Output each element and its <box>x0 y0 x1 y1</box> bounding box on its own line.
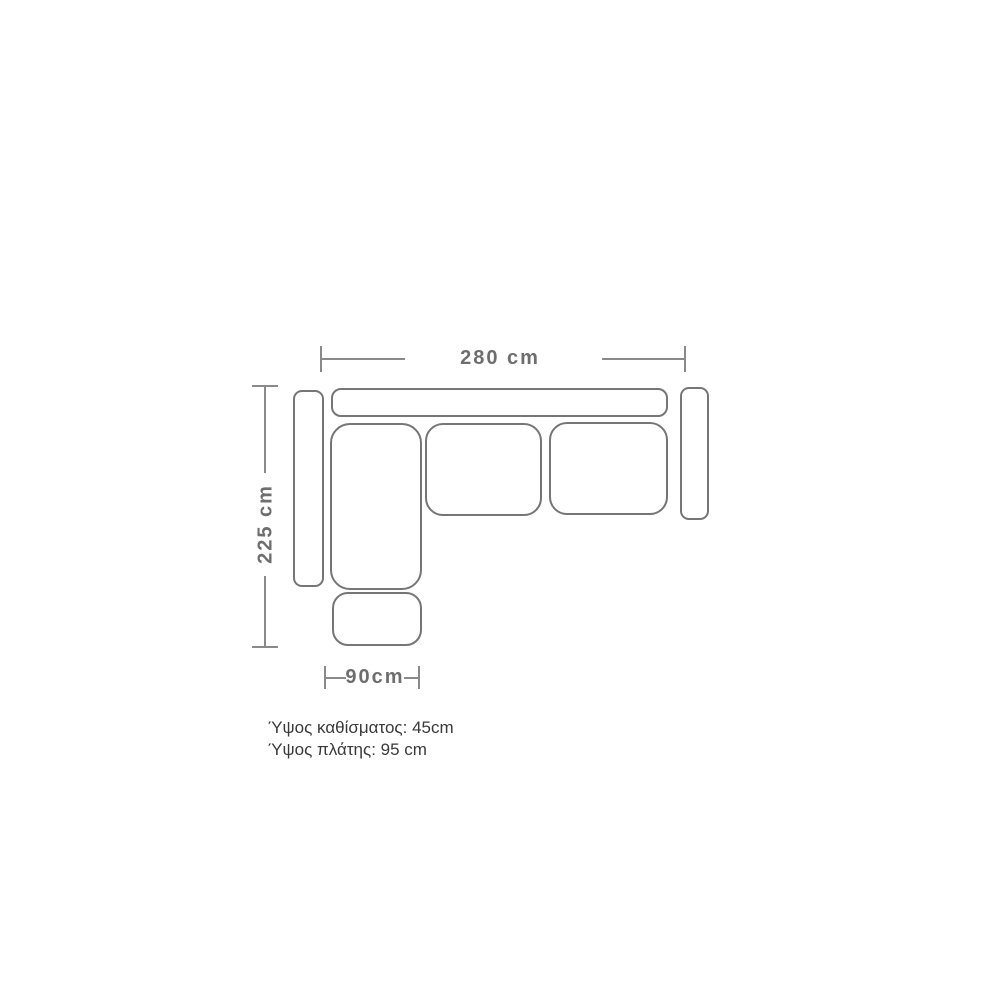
dimension-width-label: 280 cm <box>460 347 540 370</box>
dimension-chaise-right-line <box>404 677 419 679</box>
dimension-width-right-line <box>602 358 685 360</box>
dimension-depth-top-line <box>264 386 266 473</box>
dimension-width-right-tick <box>684 346 686 372</box>
seat-height-note: Ύψος καθίσματος: 45cm <box>268 717 454 739</box>
dimension-chaise-label: 90cm <box>345 666 404 689</box>
sofa-dimension-diagram: 280 cm 225 cm 90cm Ύψος καθίσματος: 45cm… <box>0 0 1000 1000</box>
dimension-depth-bottom-line <box>264 576 266 647</box>
dimension-depth-label: 225 cm <box>255 484 278 564</box>
sofa-right-armrest-shape <box>680 387 709 520</box>
sofa-backrest-shape <box>331 388 668 417</box>
sofa-ottoman-shape <box>332 592 422 646</box>
dimension-width-left-line <box>321 358 405 360</box>
dimension-chaise-right-tick <box>418 666 420 689</box>
dimension-depth-bottom-tick <box>252 646 278 648</box>
sofa-middle-seat-shape <box>425 423 542 516</box>
sofa-chaise-seat-shape <box>330 423 422 590</box>
sofa-right-seat-shape <box>549 422 668 515</box>
sofa-left-armrest-shape <box>293 390 324 587</box>
dimension-chaise-left-line <box>326 677 346 679</box>
height-notes: Ύψος καθίσματος: 45cm Ύψος πλάτης: 95 cm <box>268 717 454 761</box>
back-height-note: Ύψος πλάτης: 95 cm <box>268 739 454 761</box>
